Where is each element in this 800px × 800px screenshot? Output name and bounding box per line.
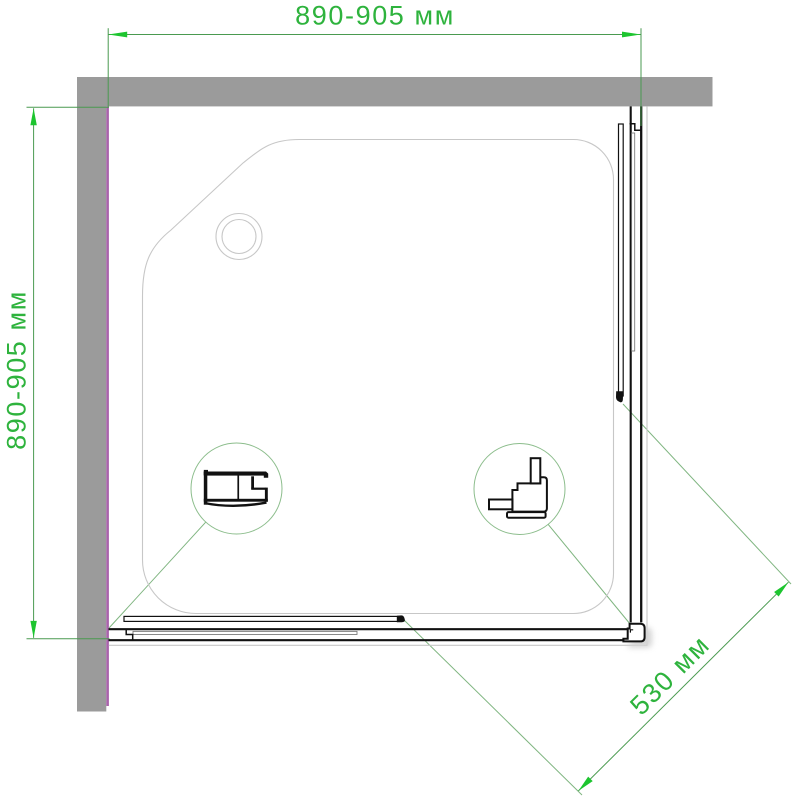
- svg-text:890-905 мм: 890-905 мм: [2, 290, 32, 450]
- svg-text:890-905 мм: 890-905 мм: [295, 1, 455, 31]
